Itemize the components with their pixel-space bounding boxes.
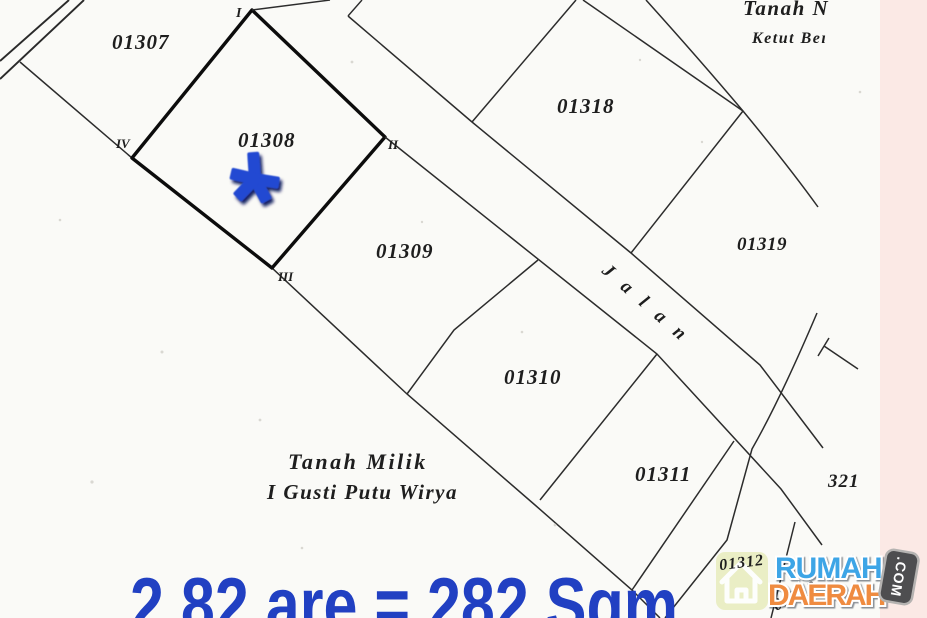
svg-text:Tanah N: Tanah N: [743, 0, 829, 20]
svg-text:Ketut Beı: Ketut Beı: [751, 30, 827, 47]
svg-text:01309: 01309: [376, 239, 434, 263]
svg-text:01318: 01318: [557, 94, 615, 118]
svg-text:01308: 01308: [238, 128, 296, 152]
svg-text:II: II: [387, 137, 399, 152]
svg-text:IV: IV: [115, 136, 131, 151]
svg-text:I: I: [235, 6, 242, 21]
svg-text:321: 321: [827, 471, 860, 492]
svg-text:I Gusti Putu Wirya: I Gusti Putu Wirya: [266, 480, 458, 504]
svg-text:Tanah Milik: Tanah Milik: [288, 449, 428, 474]
svg-text:DAERAH: DAERAH: [768, 579, 885, 612]
svg-text:01319: 01319: [737, 234, 787, 255]
svg-text:01307: 01307: [112, 30, 170, 54]
svg-text:2.82 are = 282 Sqm: 2.82 are = 282 Sqm: [130, 563, 678, 618]
svg-text:01311: 01311: [635, 462, 691, 486]
svg-text:III: III: [277, 269, 294, 284]
svg-text:01310: 01310: [504, 365, 562, 389]
